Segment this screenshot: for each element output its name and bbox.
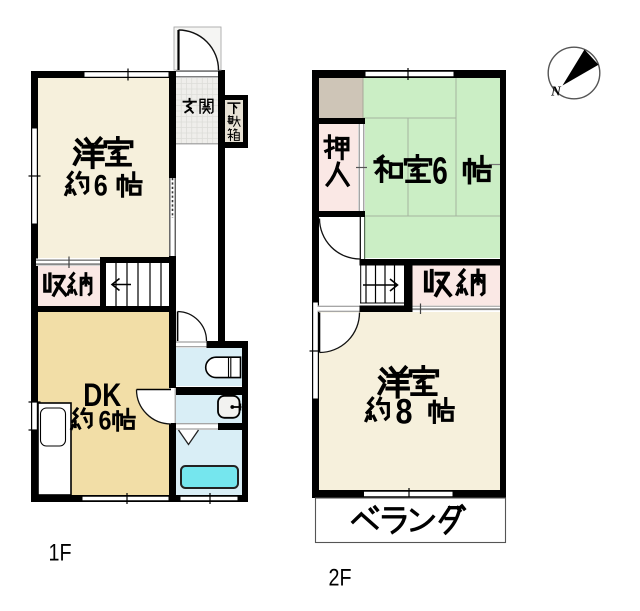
svg-text:N: N bbox=[550, 84, 562, 99]
svg-text:1F: 1F bbox=[49, 540, 72, 567]
svg-text:6: 6 bbox=[432, 151, 448, 193]
svg-text:6: 6 bbox=[94, 170, 108, 203]
svg-text:6: 6 bbox=[99, 406, 112, 436]
svg-text:2F: 2F bbox=[329, 565, 352, 592]
